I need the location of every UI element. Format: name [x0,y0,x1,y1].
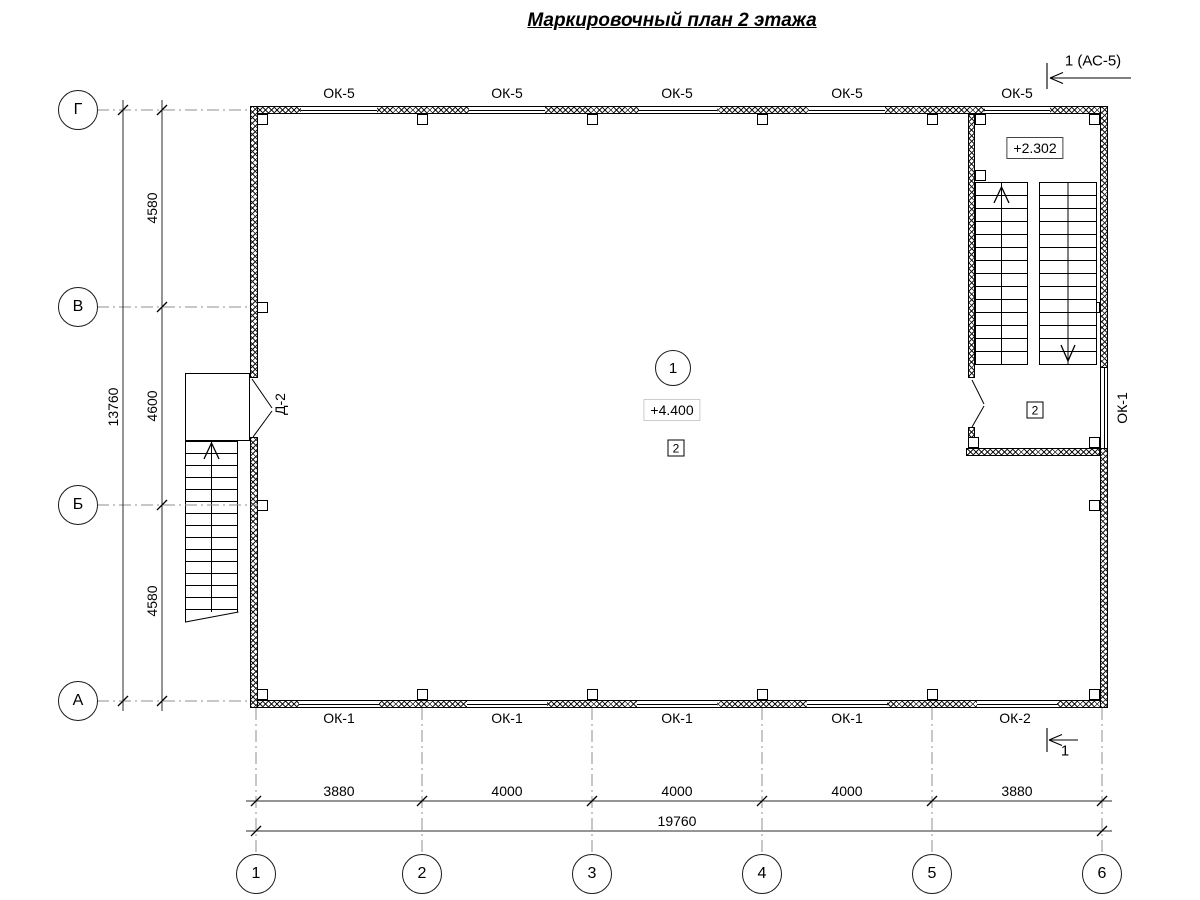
dim-bottom-bay-3: 4000 [661,784,692,798]
linework-layer [0,0,1200,900]
axis-circle-row-b: Б [58,485,98,525]
door-swing-stairwell [972,380,984,427]
room-finish-badge: 2 [668,440,685,457]
window-label-ok1-3: ОК-1 [661,711,693,725]
dim-bottom-bay-5: 3880 [1001,784,1032,798]
window-label-ok5-3: ОК-5 [661,86,693,100]
door-swing-d2 [252,379,272,437]
window-label-ok2: ОК-2 [999,711,1031,725]
window-label-ok1-4: ОК-1 [831,711,863,725]
dim-left-bay-1: 4580 [145,192,159,223]
window-label-ok5-5: ОК-5 [1001,86,1033,100]
section-mark-top-label: 1 (АС-5) [1065,53,1121,70]
room-number-circle: 1 [655,350,691,386]
axis-circle-col-4: 4 [742,854,782,894]
stair-elevation-mark: +2.302 [1006,137,1063,159]
dim-bottom-overall: 19760 [658,814,697,828]
dim-bottom-bay-4: 4000 [831,784,862,798]
dim-bottom-bay-1: 3880 [323,784,354,798]
dimension-lines [123,100,1112,831]
exterior-stair-break-line [186,611,239,622]
window-label-ok1-2: ОК-1 [491,711,523,725]
door-label-d2: Д-2 [273,393,287,415]
axis-circle-col-5: 5 [912,854,952,894]
axis-circle-col-6: 6 [1082,854,1122,894]
axis-grid-lines [97,110,1102,852]
dim-left-bay-2: 4600 [145,390,159,421]
window-label-ok1-1: ОК-1 [323,711,355,725]
floor-plan-drawing: Маркировочный план 2 этажа 1 (АС-5) 1 Г … [0,0,1200,900]
axis-circle-col-3: 3 [572,854,612,894]
stair-finish-badge: 2 [1027,402,1044,419]
dim-bottom-bay-2: 4000 [491,784,522,798]
axis-circle-col-1: 1 [236,854,276,894]
axis-circle-col-2: 2 [402,854,442,894]
section-mark-bottom-label: 1 [1061,743,1069,760]
axis-circle-row-a: А [58,681,98,721]
dimension-ticks [118,105,1107,836]
dim-left-bay-3: 4580 [145,585,159,616]
dim-left-overall: 13760 [106,388,120,427]
window-label-ok5-4: ОК-5 [831,86,863,100]
drawing-title: Маркировочный план 2 этажа [527,10,816,32]
room-elevation-mark: +4.400 [643,399,700,421]
window-label-ok5-1: ОК-5 [323,86,355,100]
axis-circle-row-v: В [58,287,98,327]
window-label-ok5-2: ОК-5 [491,86,523,100]
stair-direction-arrows [204,187,1075,459]
window-label-ok1-right: ОК-1 [1115,392,1129,424]
axis-circle-row-g: Г [58,90,98,130]
